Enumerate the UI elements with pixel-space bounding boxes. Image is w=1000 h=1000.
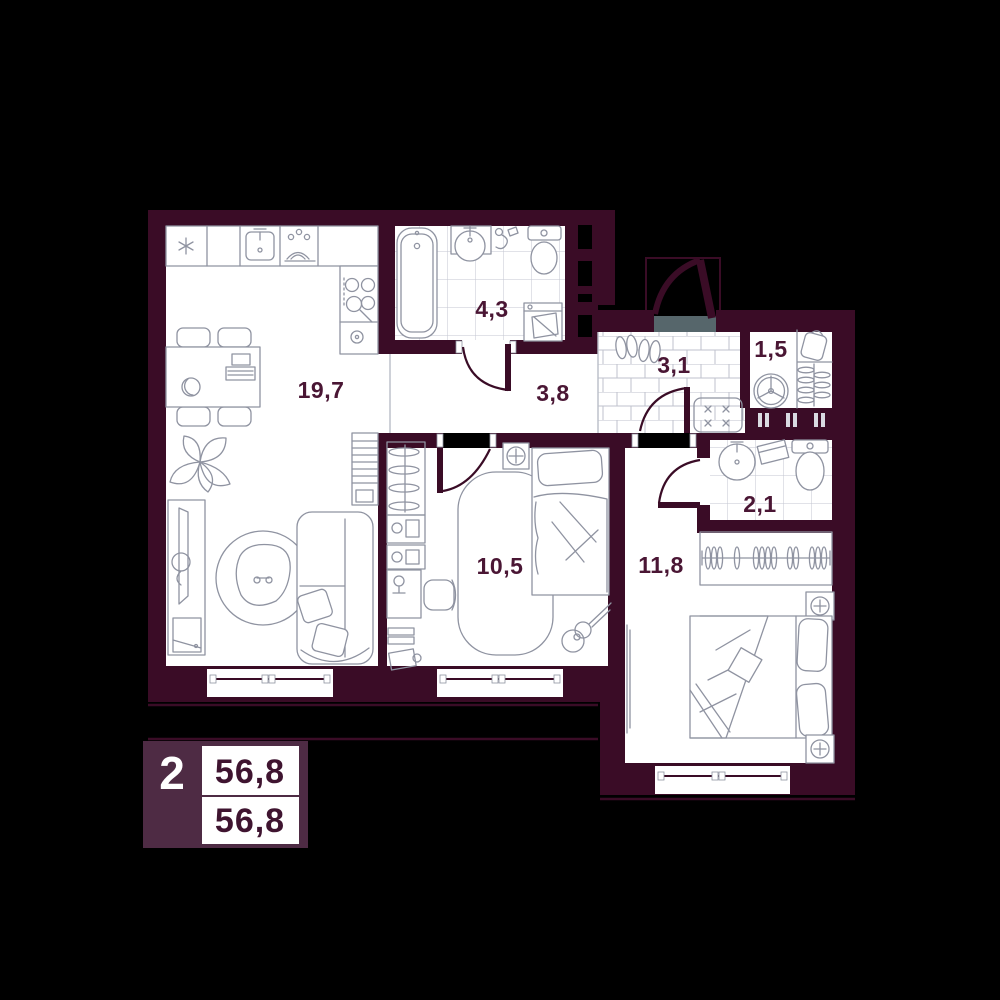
- chair-icon: [177, 328, 210, 347]
- sofa-icon: [296, 512, 373, 664]
- label-bedroom-small: 10,5: [477, 553, 524, 579]
- nightstand-lamp-icon: [806, 735, 834, 763]
- window-icon: [207, 669, 333, 697]
- label-storage: 1,5: [754, 336, 787, 362]
- chair-icon: [218, 328, 251, 347]
- window-icon: [437, 669, 563, 697]
- washing-machine-icon: [524, 303, 562, 341]
- entry-threshold: [654, 316, 716, 332]
- label-entry-hall: 3,1: [657, 352, 690, 378]
- legend: 2 56,8 56,8: [143, 741, 308, 848]
- ventilation-shaft-icon: [578, 225, 592, 337]
- chair-icon: [218, 407, 251, 426]
- ceiling-light-icon: [503, 443, 529, 469]
- pillow-icon: [797, 618, 829, 671]
- double-bed-icon: [690, 616, 832, 738]
- chair-icon: [177, 407, 210, 426]
- door-openings: [462, 340, 510, 354]
- legend-total-area: 56,8: [215, 753, 285, 791]
- label-kitchen-living: 19,7: [298, 377, 345, 403]
- floorplan-svg: 19,7 4,3 3,8 3,1 1,5 10,5 2,1 11,8 2 56,…: [0, 0, 1000, 1000]
- legend-rooms-count: 2: [159, 747, 185, 799]
- pillow-icon: [796, 683, 829, 737]
- label-hallway: 3,8: [536, 380, 569, 406]
- label-bathroom: 4,3: [475, 296, 508, 322]
- floorplan-page: 19,7 4,3 3,8 3,1 1,5 10,5 2,1 11,8 2 56,…: [0, 0, 1000, 1000]
- window-icon: [655, 766, 790, 794]
- single-bed-icon: [532, 448, 609, 595]
- label-bedroom-large: 11,8: [638, 552, 684, 578]
- legend-living-area: 56,8: [215, 802, 285, 840]
- pillow-icon: [537, 450, 603, 486]
- label-wc: 2,1: [743, 491, 776, 517]
- bathtub-icon: [397, 228, 437, 338]
